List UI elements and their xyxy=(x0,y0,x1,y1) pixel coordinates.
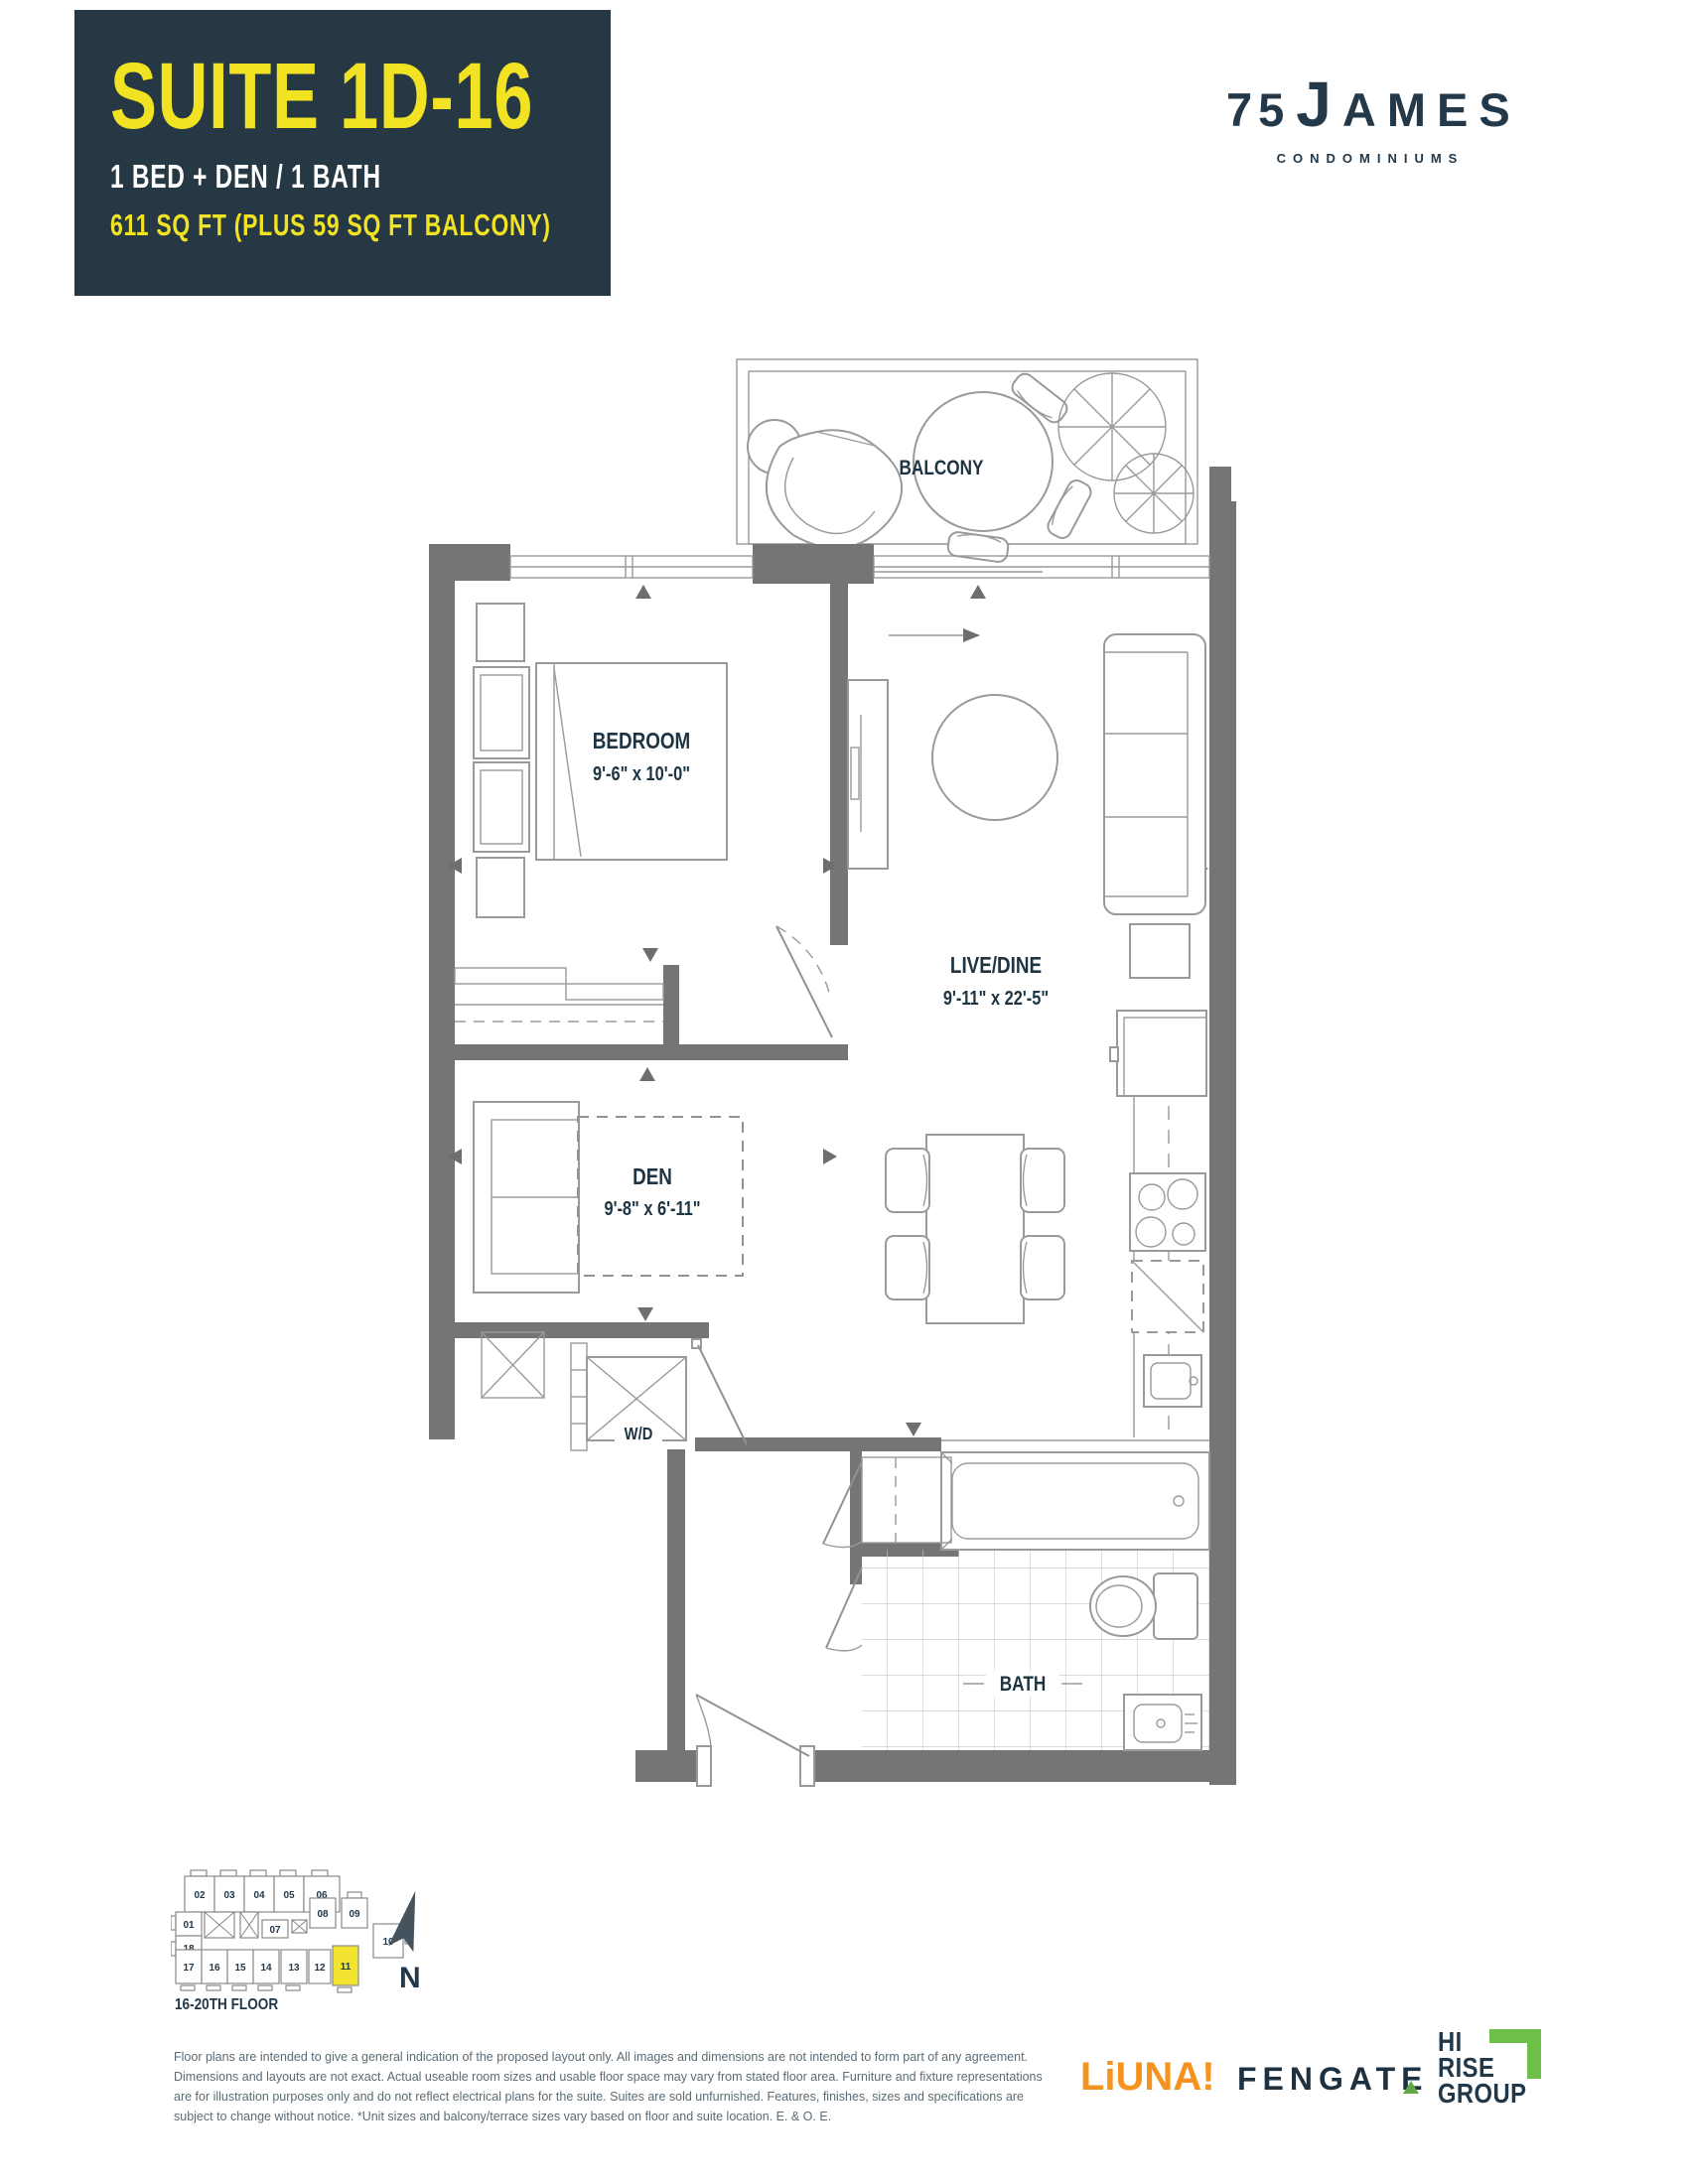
balcony-chair xyxy=(947,531,1010,563)
keyplan-unit-label: 01 xyxy=(183,1920,195,1931)
keyplan-unit-label: 12 xyxy=(314,1963,326,1974)
keyplan-unit-label: 09 xyxy=(349,1909,360,1920)
bath-label: BATH xyxy=(1000,1674,1047,1697)
bathtub xyxy=(941,1452,1209,1550)
dining-table xyxy=(926,1135,1024,1323)
dishwasher xyxy=(1132,1261,1203,1332)
balcony-chair xyxy=(1045,478,1093,541)
brand-name: JAMES xyxy=(1296,68,1520,141)
kitchen-sink xyxy=(1144,1355,1201,1407)
suite-configuration-text: 1 BED + DEN / 1 BATH xyxy=(110,158,381,196)
floorplan-page: SUITE 1D-16 1 BED + DEN / 1 BATH 611 SQ … xyxy=(0,0,1688,2184)
den-sofa xyxy=(474,1102,579,1293)
north-label: N xyxy=(399,1962,421,1994)
side-table xyxy=(1130,924,1190,978)
suite-area-text: 611 SQ FT (PLUS 59 SQ FT BALCONY) xyxy=(110,207,551,243)
brand-logo-name: 75JAMES xyxy=(1226,68,1514,141)
suite-area: 611 SQ FT (PLUS 59 SQ FT BALCONY) xyxy=(110,207,706,243)
live-dine-label: LIVE/DINE xyxy=(950,953,1042,978)
balcony-label: BALCONY xyxy=(899,458,983,480)
suite-title-text: SUITE 1D-16 xyxy=(110,50,533,144)
tv-console xyxy=(848,680,888,869)
fengate-triangle-icon xyxy=(1403,2081,1419,2094)
keyplan-units: 02 03 04 05 06 01 18 07 08 09 xyxy=(176,1876,403,1985)
bedroom-label: BEDROOM xyxy=(593,729,690,753)
keyplan-unit-label: 15 xyxy=(234,1963,246,1974)
keyplan-unit-label: 17 xyxy=(183,1963,195,1974)
bath-door xyxy=(826,1568,862,1651)
den-dims: 9'-8" x 6'-11" xyxy=(604,1196,700,1219)
bedroom-window xyxy=(510,556,753,578)
wd-label: W/D xyxy=(625,1425,653,1444)
keyplan: 02 03 04 05 06 01 18 07 08 09 xyxy=(171,1862,489,2016)
disclaimer-line: are for illustration purposes only and d… xyxy=(174,2087,1097,2107)
liuna-logo-text: LiUNA! xyxy=(1080,2055,1215,2099)
hirise-logo: HI RISE GROUP xyxy=(1438,2029,1567,2107)
entry-door xyxy=(696,1695,814,1786)
liuna-logo: LiUNA! xyxy=(1080,2055,1215,2100)
bedroom-dressers xyxy=(474,604,529,917)
north-arrow: N xyxy=(385,1888,431,1995)
den-label: DEN xyxy=(633,1164,672,1189)
brand-logo: 75JAMES CONDOMINIUMS xyxy=(1226,68,1514,166)
structural-column xyxy=(482,1332,544,1398)
keyplan-unit-label: 16 xyxy=(209,1963,220,1974)
suite-header-content: SUITE 1D-16 1 BED + DEN / 1 BATH 611 SQ … xyxy=(110,50,706,243)
keyplan-unit-label: 07 xyxy=(269,1925,281,1936)
hirise-logo-line: GROUP xyxy=(1438,2081,1548,2107)
kitchen xyxy=(1110,1011,1206,1437)
floorplan-drawing: W/D xyxy=(422,352,1236,1792)
bathroom xyxy=(823,1452,1209,1750)
brand-tagline: CONDOMINIUMS xyxy=(1226,151,1514,166)
disclaimer-line: Floor plans are intended to give a gener… xyxy=(174,2047,1097,2067)
fridge xyxy=(1110,1011,1206,1096)
brand-number: 75 xyxy=(1226,83,1290,136)
keyplan-unit-label: 11 xyxy=(341,1962,352,1973)
keyplan-floor-label: 16-20TH FLOOR xyxy=(175,1996,278,2013)
vanity-sink xyxy=(1124,1695,1201,1750)
fengate-logo: FENGATE xyxy=(1237,2061,1429,2098)
suite-header-panel: SUITE 1D-16 1 BED + DEN / 1 BATH 611 SQ … xyxy=(74,10,611,296)
bedroom-dims: 9'-6" x 10'-0" xyxy=(593,761,690,784)
area-rug xyxy=(932,695,1057,820)
north-needle xyxy=(388,1888,428,1952)
disclaimer-line: Dimensions and layouts are not exact. Ac… xyxy=(174,2067,1097,2087)
keyplan-unit-label: 02 xyxy=(194,1890,206,1901)
lounge-chair xyxy=(767,430,902,548)
keyplan-unit-label: 08 xyxy=(317,1909,329,1920)
keyplan-unit-label: 14 xyxy=(260,1963,272,1974)
live-dine-dims: 9'-11" x 22'-5" xyxy=(943,986,1049,1009)
suite-title: SUITE 1D-16 xyxy=(110,50,706,144)
keyplan-unit-label: 04 xyxy=(253,1890,265,1901)
bath-closet xyxy=(823,1457,951,1548)
washer-dryer: W/D xyxy=(571,1339,747,1450)
fengate-logo-text: FENGATE xyxy=(1237,2061,1429,2097)
disclaimer-line: subject to change without notice. *Unit … xyxy=(174,2107,1097,2126)
toilet xyxy=(1090,1573,1197,1639)
suite-configuration: 1 BED + DEN / 1 BATH xyxy=(110,158,706,196)
balcony-sliding-door xyxy=(874,556,1209,642)
keyplan-unit-label: 05 xyxy=(283,1890,295,1901)
keyplan-unit-label: 13 xyxy=(288,1963,300,1974)
keyplan-unit-label: 03 xyxy=(223,1890,235,1901)
sofa xyxy=(1104,634,1205,914)
bedroom-closet xyxy=(455,968,663,1022)
disclaimer: Floor plans are intended to give a gener… xyxy=(174,2047,1097,2126)
cooktop xyxy=(1130,1173,1205,1251)
bedroom-door xyxy=(776,926,832,1037)
